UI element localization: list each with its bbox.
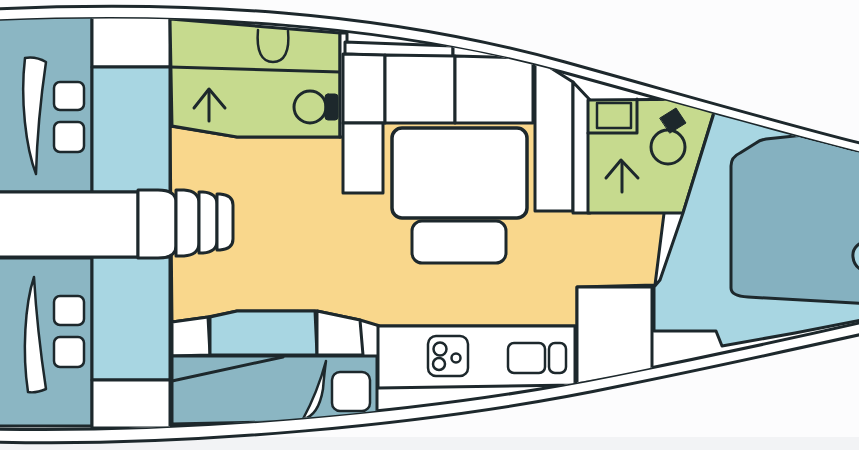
wardrobe-bottom	[92, 380, 170, 428]
aft-cabin-port-pillow-2	[54, 122, 84, 152]
companionway-landing	[138, 190, 176, 258]
galley-burner-3	[452, 354, 461, 363]
aft-cabin-port-pillow-1	[54, 82, 84, 110]
boat-floorplan-canvas	[0, 0, 859, 450]
passage-panel-top	[92, 67, 170, 192]
galley-stove	[428, 336, 468, 376]
settee-seat-3	[455, 56, 533, 123]
saloon-table	[392, 128, 527, 218]
companionway-step-1	[176, 190, 199, 256]
companionway-band	[0, 192, 138, 257]
companionway-step-3	[217, 194, 233, 250]
wardrobe-top	[92, 14, 170, 67]
head-aft-toilet-tank	[325, 94, 338, 120]
galley-sink-2	[549, 343, 566, 373]
settee-end-seat	[343, 123, 383, 193]
aft-cabin-starboard-pillow-2	[54, 337, 84, 367]
passage-panel-bottom	[92, 257, 170, 380]
fwd-island-bed	[731, 128, 859, 304]
galley-burner-2	[433, 358, 445, 370]
settee-seat-1	[343, 54, 385, 123]
side-berth-pillow	[332, 372, 370, 411]
galley-sink-1	[508, 343, 545, 373]
galley-burner-1	[434, 343, 447, 356]
settee-seat-2	[385, 55, 455, 123]
floorplan-svg	[0, 0, 859, 450]
saloon-bench	[412, 221, 506, 263]
head-aft-toilet-bowl	[294, 91, 326, 123]
settee-chaise	[535, 58, 573, 211]
side-seat-left	[172, 317, 210, 356]
nav-desk	[577, 287, 652, 384]
side-locker-blue	[210, 311, 317, 355]
interior-layer	[0, 14, 859, 428]
head-fwd-toilet-bowl	[651, 130, 685, 164]
aft-cabin-starboard-pillow-1	[54, 296, 84, 325]
companionway-step-2	[199, 192, 217, 253]
